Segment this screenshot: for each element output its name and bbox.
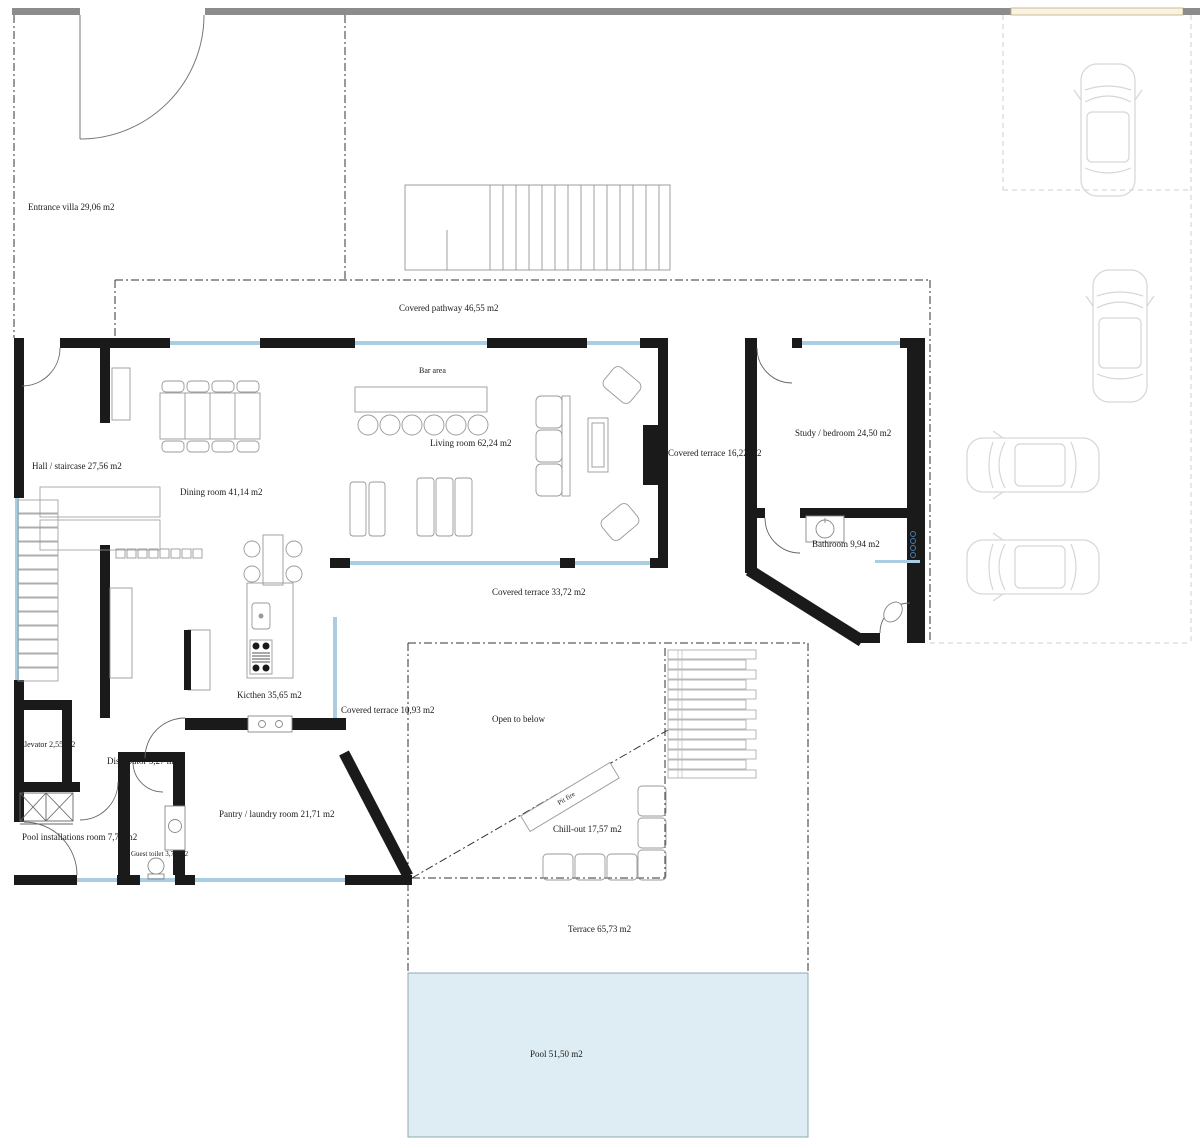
label-pantry-laundry: Pantry / laundry room 21,71 m2 — [219, 809, 335, 819]
label-bar-area: Bar area — [419, 366, 446, 375]
label-hall-staircase: Hall / staircase 27,56 m2 — [32, 461, 122, 471]
label-open-to-below: Open to below — [492, 714, 545, 724]
label-entrance-villa: Entrance villa 29,06 m2 — [28, 202, 114, 212]
label-kitchen: Kicthen 35,65 m2 — [237, 690, 302, 700]
pool-equipment-box — [20, 793, 73, 824]
label-chill-out: Chill-out 17,57 m2 — [553, 824, 622, 834]
label-guest-toilet: Guest toilet 3,75 m2 — [131, 850, 188, 858]
label-pool-installations: Pool installations room 7,75 m2 — [22, 832, 137, 842]
label-elevator: Elevator 2,55 m2 — [20, 740, 75, 749]
living-furniture — [350, 364, 643, 543]
label-pool: Pool 51,50 m2 — [530, 1049, 583, 1059]
entrance-gate-door-arc — [80, 15, 204, 139]
label-bathroom: Bathroom 9,94 m2 — [812, 539, 880, 549]
kitchen-furniture — [110, 535, 302, 690]
label-covered-terrace-small: Covered terrace 10,93 m2 — [341, 705, 434, 715]
parked-cars — [967, 64, 1154, 601]
label-distributor: Distributor 5,27 m2 — [107, 756, 178, 766]
label-living-room: Living room 62,24 m2 — [430, 438, 512, 448]
perimeter-wall — [12, 8, 1200, 15]
terrace-stairs — [668, 650, 756, 778]
label-covered-terrace-south: Covered terrace 33,72 m2 — [492, 587, 585, 597]
pool-water — [408, 973, 808, 1137]
label-covered-pathway: Covered pathway 46,55 m2 — [399, 303, 498, 313]
label-terrace: Terrace 65,73 m2 — [568, 924, 631, 934]
hall-stairs — [18, 487, 160, 681]
label-study-bedroom: Study / bedroom 24,50 m2 — [795, 428, 891, 438]
label-dining-room: Dining room 41,14 m2 — [180, 487, 263, 497]
pathway-stairs — [405, 185, 670, 270]
label-covered-terrace-east: Covered terrace 16,22 m2 — [668, 448, 761, 458]
label-chimney: Chimney — [648, 444, 656, 470]
dining-furniture — [112, 368, 260, 452]
windows — [15, 341, 920, 882]
floor-plan: Entrance villa 29,06 m2 Covered pathway … — [0, 0, 1200, 1148]
floor-plan-linework — [0, 0, 1200, 1148]
